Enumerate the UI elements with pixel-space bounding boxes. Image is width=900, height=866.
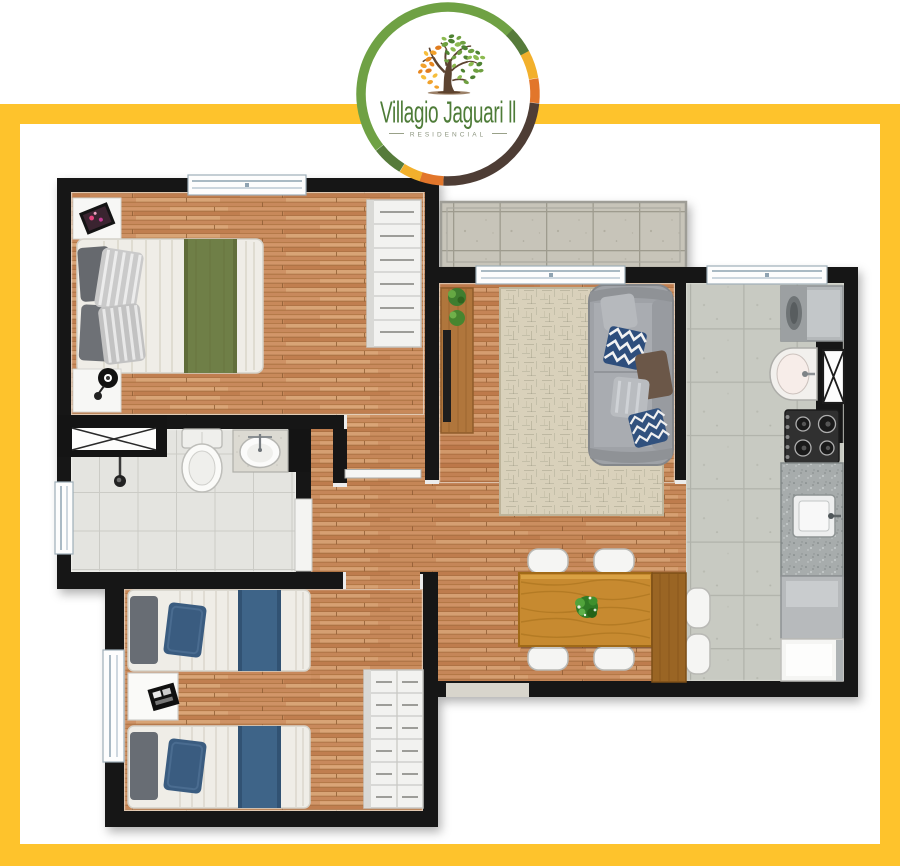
svg-text:RESIDENCIAL: RESIDENCIAL bbox=[410, 132, 486, 139]
svg-text:Villagio Jaguari ll: Villagio Jaguari ll bbox=[380, 96, 516, 130]
